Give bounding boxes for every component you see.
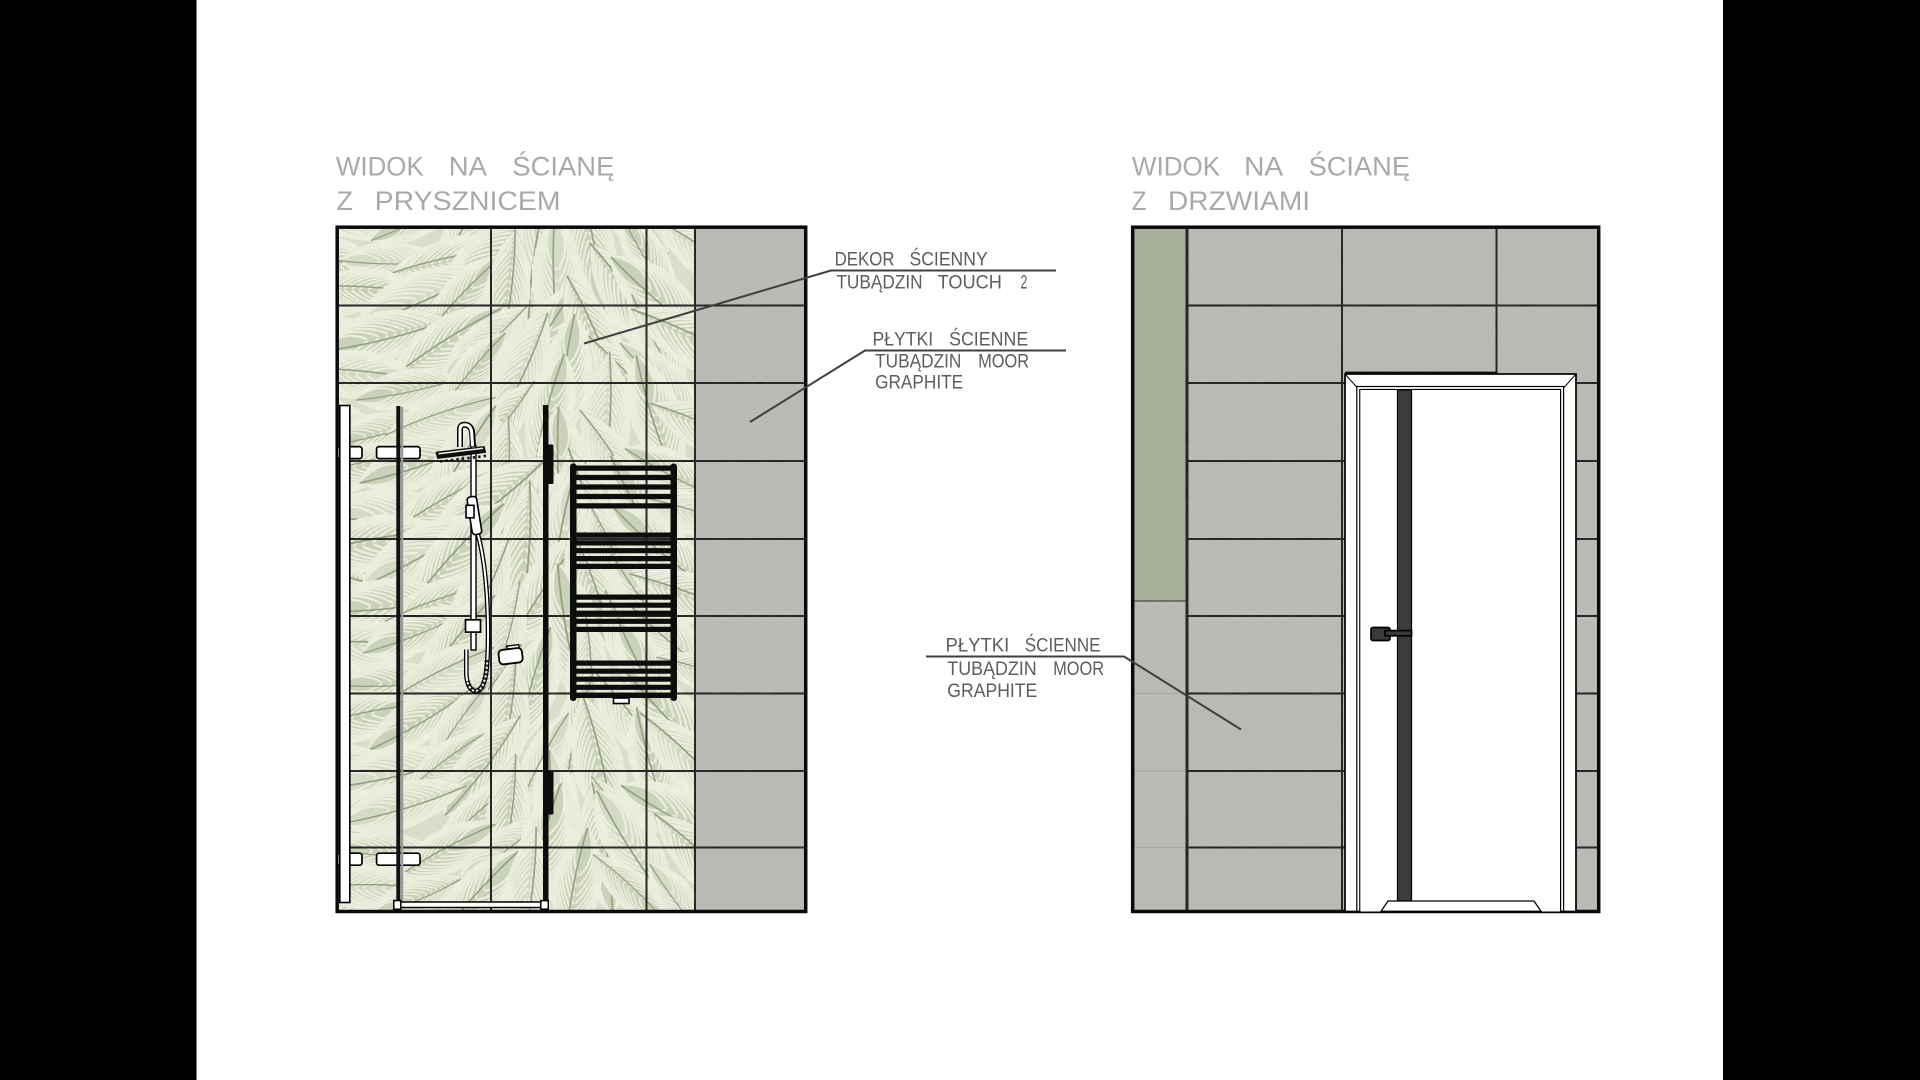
svg-text:ŚCIENNY: ŚCIENNY	[910, 249, 988, 271]
svg-text:PRYSZNICEM: PRYSZNICEM	[375, 186, 561, 216]
svg-text:ŚCIENNE: ŚCIENNE	[1025, 635, 1101, 657]
svg-text:WIDOK: WIDOK	[336, 152, 424, 182]
svg-text:GRAPHITE: GRAPHITE	[947, 681, 1037, 702]
svg-text:DRZWIAMI: DRZWIAMI	[1168, 186, 1310, 216]
svg-text:PŁYTKI: PŁYTKI	[946, 636, 1010, 657]
svg-text:ŚCIANĘ: ŚCIANĘ	[512, 150, 614, 182]
svg-text:TOUCH: TOUCH	[938, 273, 1002, 294]
svg-text:MOOR: MOOR	[978, 352, 1029, 373]
svg-text:DEKOR: DEKOR	[835, 250, 895, 271]
svg-text:2: 2	[1020, 273, 1027, 294]
svg-text:TUBĄDZIN: TUBĄDZIN	[947, 659, 1036, 680]
svg-text:NA: NA	[449, 152, 487, 182]
svg-text:WIDOK: WIDOK	[1132, 152, 1220, 182]
svg-text:ŚCIANĘ: ŚCIANĘ	[1309, 150, 1410, 182]
svg-text:TUBĄDZIN: TUBĄDZIN	[836, 273, 922, 294]
svg-text:PŁYTKI: PŁYTKI	[873, 330, 934, 351]
svg-text:ŚCIENNE: ŚCIENNE	[949, 329, 1028, 351]
svg-text:NA: NA	[1244, 152, 1283, 182]
svg-text:TUBĄDZIN: TUBĄDZIN	[875, 352, 961, 373]
svg-text:Z: Z	[336, 186, 353, 216]
svg-text:GRAPHITE: GRAPHITE	[875, 373, 963, 394]
svg-text:Z: Z	[1132, 186, 1147, 216]
svg-text:MOOR: MOOR	[1053, 659, 1104, 680]
